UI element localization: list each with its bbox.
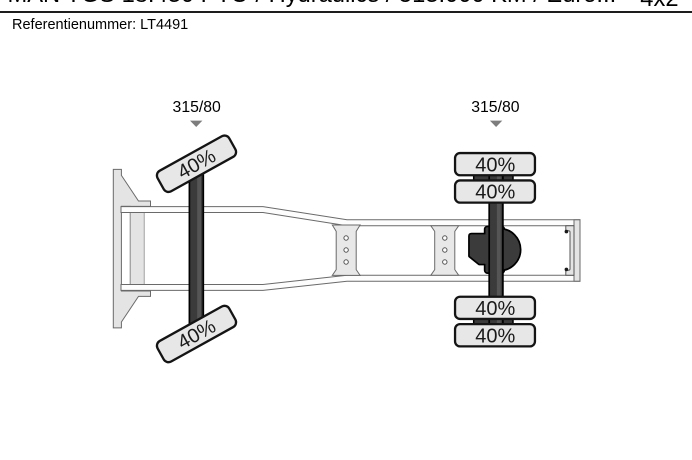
svg-text:315/80: 315/80 [471,99,520,116]
svg-text:40%: 40% [475,325,515,347]
svg-text:315/80: 315/80 [173,99,222,116]
svg-text:40%: 40% [475,154,515,176]
svg-text:40%: 40% [475,182,515,204]
svg-text:40%: 40% [475,298,515,320]
